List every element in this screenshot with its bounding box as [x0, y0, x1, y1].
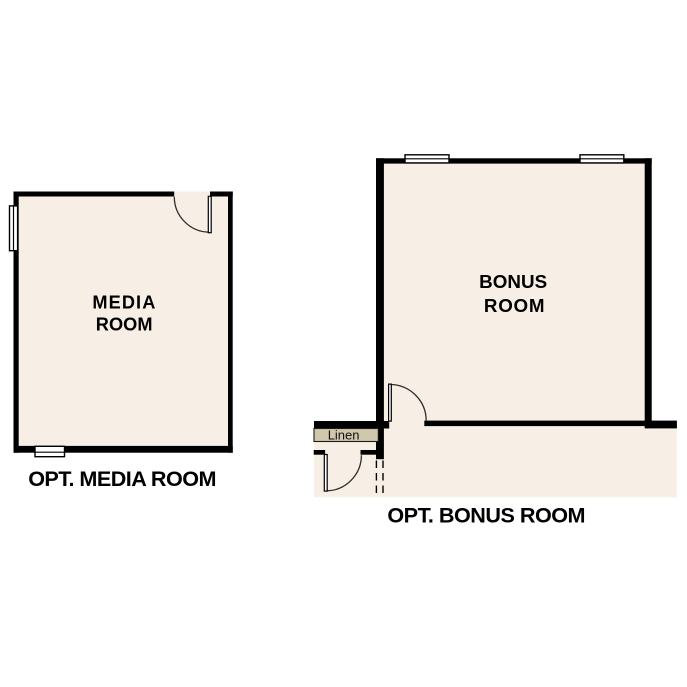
svg-text:MEDIA: MEDIA	[92, 293, 156, 313]
svg-text:Linen: Linen	[328, 427, 360, 442]
svg-text:ROOM: ROOM	[484, 295, 545, 316]
svg-text:ROOM: ROOM	[96, 315, 153, 335]
svg-text:OPT. BONUS ROOM: OPT. BONUS ROOM	[387, 502, 585, 527]
svg-text:OPT. MEDIA ROOM: OPT. MEDIA ROOM	[28, 466, 216, 491]
svg-text:BONUS: BONUS	[479, 271, 547, 292]
